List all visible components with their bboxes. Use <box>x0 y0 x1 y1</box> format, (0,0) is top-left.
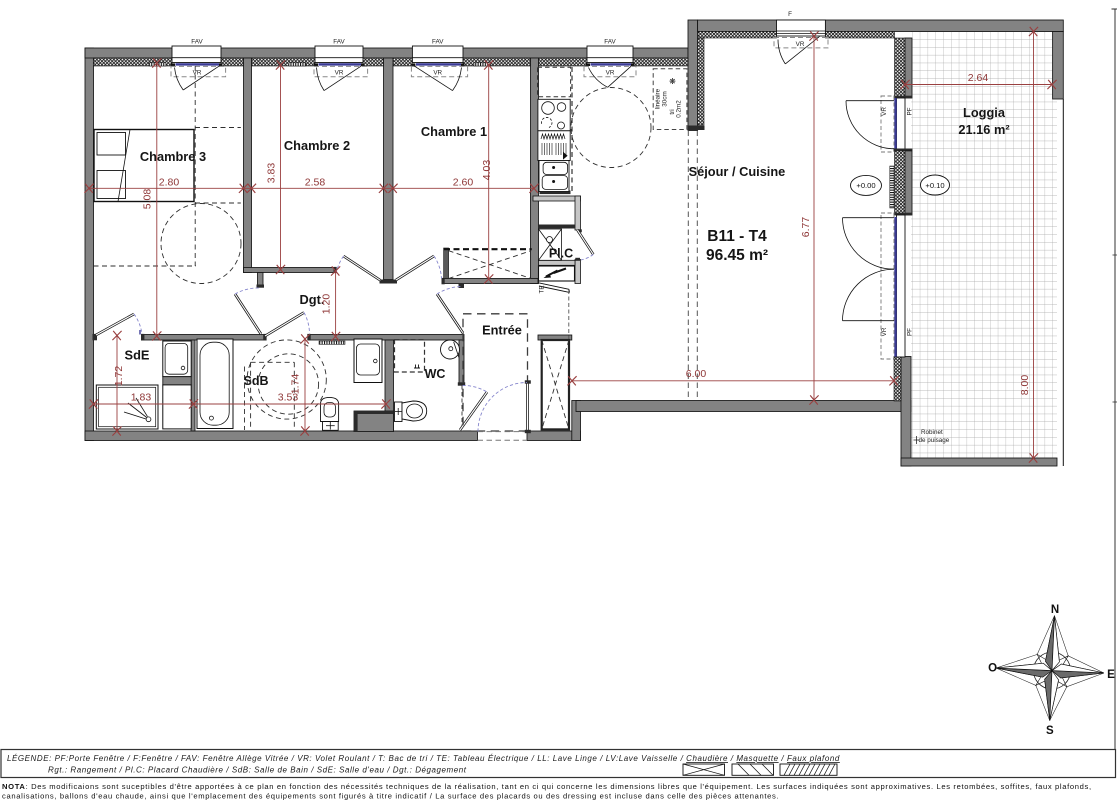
svg-text:Chambre 3: Chambre 3 <box>140 149 206 164</box>
svg-text:VR: VR <box>433 70 442 77</box>
svg-text:21.16 m²: 21.16 m² <box>958 122 1009 137</box>
svg-text:Chambre 1: Chambre 1 <box>421 124 487 139</box>
svg-text:2.60: 2.60 <box>453 177 474 189</box>
svg-text:1.20: 1.20 <box>321 294 333 315</box>
svg-text:linéaire: linéaire <box>655 88 662 109</box>
svg-text:6.00: 6.00 <box>686 368 707 380</box>
svg-text:PF: PF <box>907 328 914 336</box>
svg-text:+0.10: +0.10 <box>925 181 944 190</box>
svg-text:F: F <box>788 11 792 18</box>
svg-text:5.08: 5.08 <box>142 189 154 210</box>
svg-text:0.2m2: 0.2m2 <box>676 100 683 118</box>
svg-text:NOTA: Des modificaions sont su: NOTA: Des modificaions sont suceptibles … <box>2 782 1092 791</box>
svg-text:Pl.C: Pl.C <box>549 247 573 261</box>
svg-text:WC: WC <box>425 367 446 381</box>
svg-text:2.64: 2.64 <box>968 72 989 84</box>
svg-text:❋: ❋ <box>669 77 676 86</box>
svg-text:S: S <box>1046 725 1054 737</box>
svg-text:O: O <box>988 663 997 675</box>
svg-text:FAV: FAV <box>604 39 616 46</box>
svg-text:VR: VR <box>193 70 202 77</box>
svg-text:FAV: FAV <box>432 39 444 46</box>
svg-text:canalisations, ballons d'eau c: canalisations, ballons d'eau chaude, ain… <box>2 792 779 800</box>
svg-text:Séjour / Cuisine: Séjour / Cuisine <box>689 164 786 179</box>
svg-text:+0.00: +0.00 <box>856 181 875 190</box>
svg-text:2.80: 2.80 <box>159 177 180 189</box>
svg-text:VR: VR <box>796 41 805 48</box>
svg-text:8.00: 8.00 <box>1019 375 1031 396</box>
svg-text:Rgt.: Rangement / Pl.C: Placar: Rgt.: Rangement / Pl.C: Placard Chaudièr… <box>48 766 467 775</box>
svg-text:TE: TE <box>539 285 546 293</box>
svg-text:30cm: 30cm <box>662 91 669 106</box>
svg-text:VR: VR <box>881 107 888 116</box>
svg-text:1.83: 1.83 <box>131 392 152 404</box>
svg-text:VR: VR <box>335 70 344 77</box>
svg-text:4.03: 4.03 <box>481 160 493 181</box>
svg-text:1.74: 1.74 <box>290 374 302 395</box>
svg-text:Robinet: Robinet <box>921 429 943 436</box>
svg-text:SdE: SdE <box>125 348 150 363</box>
svg-text:2.58: 2.58 <box>305 177 326 189</box>
svg-text:PF: PF <box>907 107 914 115</box>
svg-text:Entrée: Entrée <box>482 323 522 338</box>
svg-text:FAV: FAV <box>191 39 203 46</box>
svg-text:B11 - T4: B11 - T4 <box>707 228 767 245</box>
svg-text:6.77: 6.77 <box>800 217 812 238</box>
svg-text:96.45 m²: 96.45 m² <box>706 247 768 264</box>
svg-text:FAV: FAV <box>333 39 345 46</box>
svg-text:Chambre 2: Chambre 2 <box>284 138 350 153</box>
svg-text:3.83: 3.83 <box>266 163 278 184</box>
svg-text:de puisage: de puisage <box>919 437 950 444</box>
svg-text:N: N <box>1051 604 1059 616</box>
svg-text:VR: VR <box>606 70 615 77</box>
svg-text:VR: VR <box>881 327 888 336</box>
svg-text:E: E <box>1107 669 1115 681</box>
svg-text:LÉGENDE: PF:Porte Fenêtre / F:: LÉGENDE: PF:Porte Fenêtre / F:Fenêtre / … <box>7 754 840 763</box>
svg-text:Loggia: Loggia <box>963 105 1006 120</box>
svg-text:1.72: 1.72 <box>113 366 125 387</box>
